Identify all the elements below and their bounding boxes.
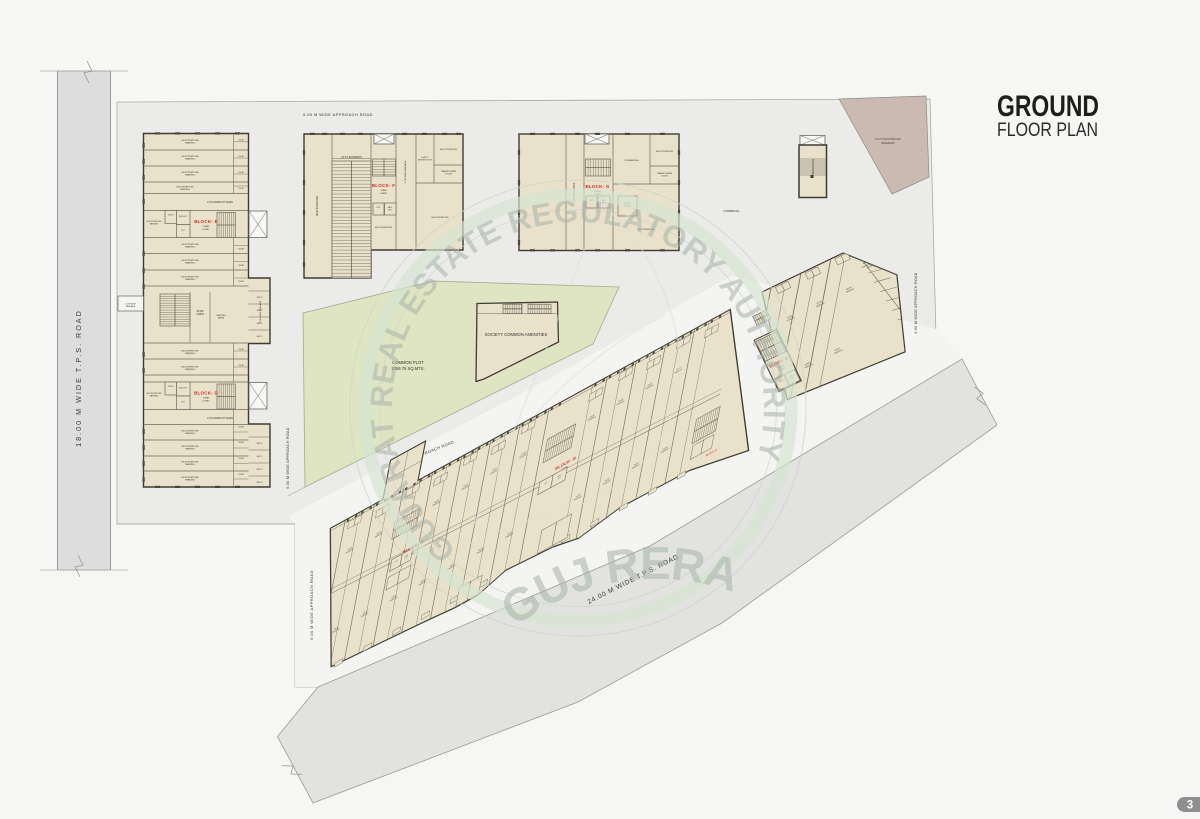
svg-text:MULTI: MULTI xyxy=(257,482,263,484)
svg-text:LOBBY: LOBBY xyxy=(202,401,210,403)
svg-text:2.0 M WIDE KITCHEN: 2.0 M WIDE KITCHEN xyxy=(207,416,233,420)
svg-text:MULTIPURPOSE: MULTIPURPOSE xyxy=(656,151,674,153)
svg-text:MULTIPURPOSE: MULTIPURPOSE xyxy=(181,260,199,262)
svg-text:TOILET: TOILET xyxy=(238,349,245,351)
svg-text:PARKING: PARKING xyxy=(185,158,195,161)
svg-text:TOILET: TOILET xyxy=(238,427,245,429)
svg-text:BLOCK- E: BLOCK- E xyxy=(194,219,218,224)
svg-text:MULTIPURPOSE: MULTIPURPOSE xyxy=(181,446,199,448)
svg-text:LOBBY: LOBBY xyxy=(380,193,388,195)
svg-text:MULTI: MULTI xyxy=(257,469,263,471)
svg-text:TOILET: TOILET xyxy=(168,386,175,388)
svg-text:6.00 M WIDE APPROACH ROAD: 6.00 M WIDE APPROACH ROAD xyxy=(914,272,918,333)
svg-text:COMMERCIAL: COMMERCIAL xyxy=(723,210,740,213)
svg-text:PARKING: PARKING xyxy=(180,188,190,191)
svg-text:MULTIPURPOSE: MULTIPURPOSE xyxy=(315,196,319,217)
svg-text:PARKING: PARKING xyxy=(185,448,195,451)
svg-text:2.0 M WIDE KITCHEN: 2.0 M WIDE KITCHEN xyxy=(207,200,233,204)
svg-text:MULTIPURPOSE: MULTIPURPOSE xyxy=(181,277,199,279)
svg-text:TOILET: TOILET xyxy=(238,281,245,283)
svg-text:PASSAGE: PASSAGE xyxy=(126,305,136,308)
svg-text:TOILET: TOILET xyxy=(238,188,245,190)
svg-text:TOILET: TOILET xyxy=(238,156,245,158)
svg-text:MULTIPURPOSE: MULTIPURPOSE xyxy=(431,217,449,219)
svg-text:1.5 M WIDE: 1.5 M WIDE xyxy=(125,304,136,306)
svg-text:MULTIPURPOSE: MULTIPURPOSE xyxy=(181,156,199,158)
svg-text:METER ROOM: METER ROOM xyxy=(418,160,432,162)
svg-text:MULTIPURPOSE: MULTIPURPOSE xyxy=(181,367,199,369)
svg-text:6.00 M WIDE APPROACH ROAD: 6.00 M WIDE APPROACH ROAD xyxy=(286,427,290,488)
svg-text:PARKING: PARKING xyxy=(185,479,195,482)
svg-text:MULTIPURPOSE: MULTIPURPOSE xyxy=(181,351,199,353)
svg-text:SER.LIFT: SER.LIFT xyxy=(179,216,188,218)
svg-text:2.0 M WIDE PASSAGE: 2.0 M WIDE PASSAGE xyxy=(404,160,407,183)
svg-text:SER.LIFT: SER.LIFT xyxy=(179,388,188,390)
svg-text:SOCIETY COMMON AMENITIES: SOCIETY COMMON AMENITIES xyxy=(485,332,548,337)
svg-text:MULTI: MULTI xyxy=(257,323,263,325)
svg-text:TOILET: TOILET xyxy=(238,140,245,142)
svg-text:STAIR: STAIR xyxy=(203,225,210,228)
svg-text:BLOCK- F: BLOCK- F xyxy=(372,183,395,188)
svg-text:MULTIPURPOSE: MULTIPURPOSE xyxy=(440,149,458,151)
svg-text:LOBBY: LOBBY xyxy=(202,229,210,231)
svg-text:PLOT FOR KHODIYAR: PLOT FOR KHODIYAR xyxy=(876,138,901,141)
svg-text:STAIR: STAIR xyxy=(380,189,387,192)
svg-text:MULTI: MULTI xyxy=(257,456,263,458)
svg-text:FLOOR PLAN: FLOOR PLAN xyxy=(997,120,1098,141)
svg-text:ROOM: ROOM xyxy=(661,176,668,178)
svg-text:PARKING: PARKING xyxy=(150,222,159,225)
svg-text:MULTI: MULTI xyxy=(257,443,263,445)
svg-text:PARKING: PARKING xyxy=(185,246,195,249)
svg-text:PARKING: PARKING xyxy=(185,368,195,371)
svg-text:TOILET: TOILET xyxy=(238,474,245,476)
svg-text:MULTIPURPOSE: MULTIPURPOSE xyxy=(181,140,199,142)
svg-text:TOILET: TOILET xyxy=(168,215,175,217)
svg-text:PARKING: PARKING xyxy=(185,174,195,177)
svg-text:TOILET: TOILET xyxy=(238,172,245,174)
svg-text:TOILET: TOILET xyxy=(238,365,245,367)
svg-text:BLOCK- G: BLOCK- G xyxy=(585,184,609,189)
svg-text:PARKING: PARKING xyxy=(185,432,195,435)
svg-text:MULTIPURPOSE: MULTIPURPOSE xyxy=(181,172,199,174)
svg-text:CABIN: CABIN xyxy=(196,313,204,316)
svg-text:TOILET: TOILET xyxy=(238,458,245,460)
svg-text:MULTIPURPOSE: MULTIPURPOSE xyxy=(181,244,199,246)
svg-text:MULTI: MULTI xyxy=(257,336,263,338)
svg-text:PARKING: PARKING xyxy=(150,394,159,397)
svg-text:AREA: AREA xyxy=(218,317,224,320)
svg-text:MULTIPURPOSE: MULTIPURPOSE xyxy=(181,462,199,464)
svg-text:6.00 M WIDE APPROACH ROAD: 6.00 M WIDE APPROACH ROAD xyxy=(309,570,314,640)
svg-text:PARKING: PARKING xyxy=(185,352,195,355)
svg-text:COMMERCIAL: COMMERCIAL xyxy=(624,159,640,162)
svg-text:MULTI: MULTI xyxy=(257,310,263,312)
svg-text:MULTI: MULTI xyxy=(257,297,263,299)
svg-text:PARKING: PARKING xyxy=(185,262,195,265)
svg-text:TOILET: TOILET xyxy=(238,265,245,267)
svg-text:18.00 M WIDE T.P.S. ROAD: 18.00 M WIDE T.P.S. ROAD xyxy=(74,309,83,447)
svg-text:PARKING: PARKING xyxy=(185,463,195,466)
svg-text:PARKING: PARKING xyxy=(185,278,195,281)
svg-text:GROUND: GROUND xyxy=(997,90,1099,123)
svg-text:MULTIPURPOSE: MULTIPURPOSE xyxy=(181,477,199,479)
svg-text:3: 3 xyxy=(1187,800,1193,812)
svg-text:STAIR: STAIR xyxy=(203,397,210,400)
svg-text:ROOM: ROOM xyxy=(445,174,452,176)
svg-text:MULTIPURPOSE: MULTIPURPOSE xyxy=(176,187,194,189)
svg-text:MULTIPURPOSE: MULTIPURPOSE xyxy=(375,227,393,229)
svg-text:MULTIPURPOSE: MULTIPURPOSE xyxy=(181,431,199,433)
svg-text:BLOCK- D: BLOCK- D xyxy=(194,391,218,396)
svg-text:WAITING: WAITING xyxy=(216,314,226,317)
svg-text:TOILET: TOILET xyxy=(238,442,245,444)
svg-text:6.00 M WIDE APPROACH ROAD: 6.00 M WIDE APPROACH ROAD xyxy=(303,112,373,117)
svg-text:RESERVED: RESERVED xyxy=(881,142,894,145)
svg-text:TOILET: TOILET xyxy=(238,249,245,251)
svg-text:PARKING: PARKING xyxy=(185,142,195,145)
